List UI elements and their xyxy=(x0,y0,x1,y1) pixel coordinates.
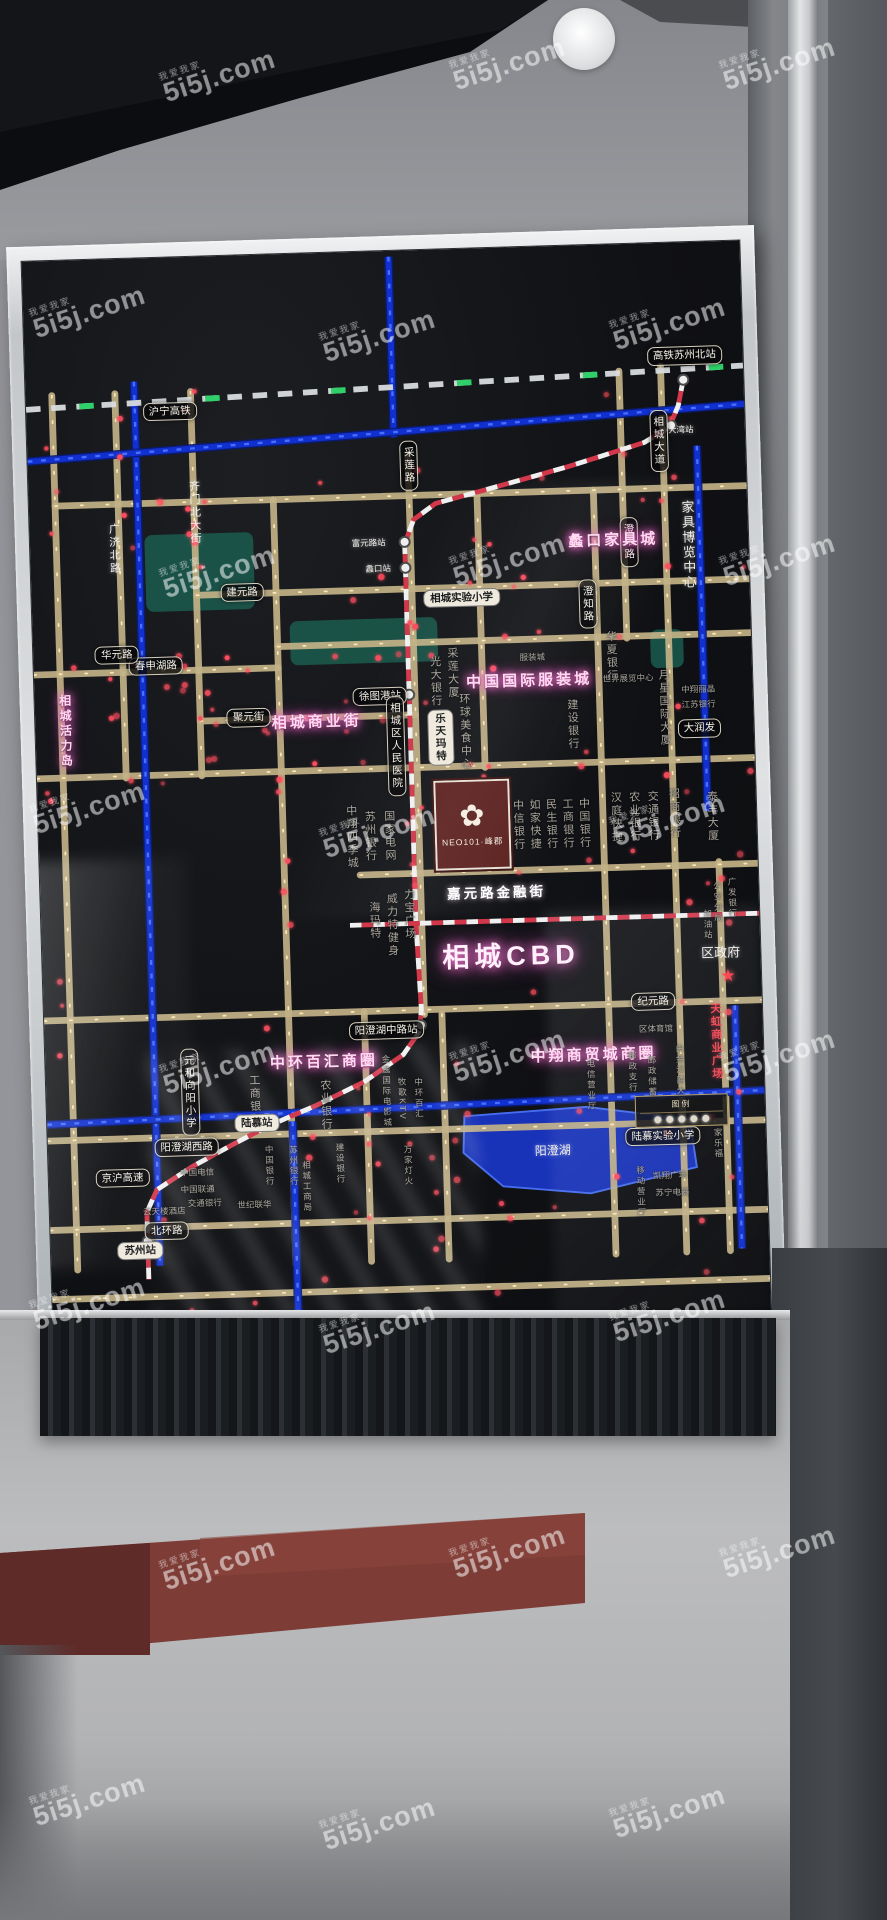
red-led-dot xyxy=(641,498,645,502)
map-label: 环球美食中心 xyxy=(457,692,472,770)
developer-brand-text: NEO101·峰郡 xyxy=(442,835,504,849)
red-led-dot xyxy=(499,1201,504,1206)
map-label: 大润发 xyxy=(677,719,721,738)
red-led-dot xyxy=(675,703,681,709)
map-label: 苏宁电器 xyxy=(655,1187,689,1198)
red-led-dot xyxy=(378,574,385,581)
legend-dot-icon xyxy=(702,1115,709,1122)
red-led-dot xyxy=(434,1190,439,1195)
red-led-dot xyxy=(322,1276,329,1282)
map-label: 世纪联华 xyxy=(237,1200,271,1211)
red-led-dot xyxy=(686,899,692,905)
map-board-frame: 沪宁高铁高铁苏州北站大湾站澄阳路采莲路相城大道澄知路广济北路齐门北大街富元路站蠡… xyxy=(6,225,786,1349)
red-led-dot xyxy=(108,677,112,681)
red-led-dot xyxy=(604,392,609,397)
legend-title: 图例 xyxy=(640,1097,724,1113)
red-led-dot xyxy=(487,542,492,547)
location-map: 沪宁高铁高铁苏州北站大湾站澄阳路采莲路相城大道澄知路广济北路齐门北大街富元路站蠡… xyxy=(21,239,773,1334)
red-led-dot xyxy=(161,781,165,785)
map-label: 建元路 xyxy=(220,582,264,601)
photo-scene: 沪宁高铁高铁苏州北站大湾站澄阳路采莲路相城大道澄知路广济北路齐门北大街富元路站蠡… xyxy=(0,0,887,1920)
entry-mat-grate xyxy=(40,1318,776,1436)
map-label: 北环路 xyxy=(145,1221,189,1240)
red-led-dot xyxy=(584,750,589,755)
floor-red-stripe xyxy=(0,1505,585,1655)
red-led-dot xyxy=(671,474,677,480)
ceiling-dark-panel-inner xyxy=(0,0,548,132)
map-label: 电信营业厅 xyxy=(585,1059,596,1112)
map-label: 大湾站 xyxy=(668,426,694,437)
map-label: 广济北路 xyxy=(107,523,121,575)
map-label: 中国银行 xyxy=(263,1145,274,1187)
map-label: 齐门北大街 xyxy=(187,480,202,545)
map-label: 纪元路 xyxy=(631,991,675,1010)
map-label: 移动营业厅 xyxy=(635,1165,646,1218)
red-led-dot xyxy=(206,757,212,763)
red-led-dot xyxy=(423,700,428,705)
map-label: 建设银行 xyxy=(565,698,579,750)
map-label: 相城区人民医院 xyxy=(386,696,407,796)
floor-bottom-shadow xyxy=(0,1800,790,1920)
red-led-dot xyxy=(429,1155,435,1161)
red-led-dot xyxy=(664,772,671,779)
map-label: 区政府 xyxy=(701,946,740,962)
red-led-dot xyxy=(531,989,537,995)
legend-dot-icon xyxy=(690,1115,697,1122)
red-led-dot xyxy=(211,756,217,762)
map-label: 相城商业街 xyxy=(272,712,362,732)
red-led-dot xyxy=(726,919,733,925)
map-label: 家具博览中心 xyxy=(678,500,696,590)
red-led-dot xyxy=(45,791,50,796)
round-wall-light xyxy=(553,8,615,70)
map-label: 聚元街 xyxy=(227,708,271,727)
red-led-dot xyxy=(210,708,214,712)
red-led-dot xyxy=(354,1210,359,1215)
map-label: 澄知路 xyxy=(578,579,598,629)
map-label: 海玛特 xyxy=(367,901,381,940)
map-label: 陆慕站 xyxy=(234,1114,280,1133)
map-label: 苏州站 xyxy=(117,1241,163,1260)
map-label: 陆慕实验小学 xyxy=(625,1126,701,1146)
map-label: 招商银行 xyxy=(667,788,681,840)
metal-pillar xyxy=(788,0,818,1300)
legend-icons xyxy=(640,1114,723,1123)
red-led-dot xyxy=(737,851,744,858)
map-label: 相城大道 xyxy=(649,410,669,473)
map-label: 交通银行 xyxy=(188,1198,222,1209)
map-label: 如家快捷 xyxy=(527,798,541,850)
map-label: 中环百汇商圈 xyxy=(270,1052,378,1072)
map-label: 嘉元路金融街 xyxy=(447,884,546,902)
red-led-dot xyxy=(318,481,322,485)
red-led-dot xyxy=(164,684,170,690)
red-led-dot xyxy=(205,690,211,696)
red-led-dot xyxy=(60,1004,64,1008)
red-led-dot xyxy=(44,446,49,451)
road xyxy=(477,494,485,768)
map-label: 国家电网 xyxy=(382,810,396,862)
map-label: 采莲大厦 xyxy=(445,647,459,699)
red-led-dot xyxy=(182,682,188,688)
map-label: 相城工商局 xyxy=(301,1160,312,1213)
metro-station xyxy=(678,375,688,385)
red-led-dot xyxy=(350,597,356,603)
red-led-dot xyxy=(344,699,348,703)
map-label: 交通银行 xyxy=(645,790,659,842)
red-led-dot xyxy=(684,789,689,794)
red-led-dot xyxy=(586,857,592,863)
map-label: 采莲路 xyxy=(399,441,419,491)
right-wall-dark xyxy=(828,0,887,1280)
map-label: 苏州银行 xyxy=(363,810,377,862)
road xyxy=(442,1014,449,1259)
developer-logo: ✿NEO101·峰郡 xyxy=(433,778,511,871)
map-legend: 图例 xyxy=(635,1093,729,1128)
map-label: 万家灯火 xyxy=(402,1145,413,1187)
red-led-dot xyxy=(113,713,120,720)
map-label: 邮政储蓄 xyxy=(646,1055,657,1097)
map-label: 家乐福 xyxy=(712,1127,723,1159)
map-label: 区体育馆 xyxy=(639,1024,673,1035)
red-led-dot xyxy=(225,655,230,660)
map-label: 服装城 xyxy=(519,653,545,664)
map-label: 邮政支行 xyxy=(626,1051,637,1093)
map-label: 中国联通 xyxy=(180,1184,214,1195)
red-led-dot xyxy=(537,630,542,635)
map-label: 相城活力岛 xyxy=(57,694,73,769)
map-label: 沪宁高铁 xyxy=(142,401,197,421)
red-led-dot xyxy=(521,575,527,581)
map-label: 中翔四季城 xyxy=(344,804,359,869)
red-led-dot xyxy=(704,1269,710,1275)
red-led-dot xyxy=(122,513,128,518)
red-led-dot xyxy=(57,979,63,985)
red-led-dot xyxy=(438,1236,445,1242)
red-led-dot xyxy=(454,1061,459,1066)
map-label: 阳澄湖 xyxy=(535,1144,571,1159)
red-led-dot xyxy=(433,1246,439,1252)
red-led-dot xyxy=(312,761,317,766)
map-label: 力宝广场 xyxy=(402,889,416,941)
legend-dot-icon xyxy=(666,1116,673,1123)
map-label: 中翔丽晶 xyxy=(681,685,715,696)
legend-dot-icon xyxy=(678,1115,685,1122)
map-label: 农业银行 xyxy=(627,791,641,843)
river xyxy=(134,382,160,1266)
map-label: 富元路站 xyxy=(352,539,386,550)
map-label: 相城CBD xyxy=(442,939,580,974)
map-label: 天虹商业广场 xyxy=(708,1002,723,1080)
red-led-dot xyxy=(48,798,54,804)
map-label: 光大银行 xyxy=(428,655,442,707)
red-led-dot xyxy=(699,1218,705,1224)
red-led-dot xyxy=(490,665,497,671)
red-led-dot xyxy=(630,849,635,854)
metro-station xyxy=(400,563,410,573)
red-led-dot xyxy=(495,1289,501,1295)
map-label: 加油站 xyxy=(702,908,713,940)
map-label: 工商银行 xyxy=(560,798,574,850)
map-label: 元和向阳小学 xyxy=(180,1049,201,1136)
red-led-dot xyxy=(747,768,753,774)
map-label: 月星国际大厦 xyxy=(656,669,671,747)
map-label: 中国电信 xyxy=(180,1168,214,1179)
map-label: 威力特健身 xyxy=(384,892,399,957)
red-led-dot xyxy=(57,1053,62,1058)
map-label: 中环百汇 xyxy=(413,1077,424,1119)
map-label: 华元路 xyxy=(95,646,139,665)
map-label: 牧歌KTV xyxy=(396,1077,407,1121)
red-led-dot xyxy=(264,1025,270,1031)
red-led-dot xyxy=(405,821,410,826)
red-led-dot xyxy=(71,665,77,671)
red-led-dot xyxy=(253,1301,258,1306)
red-led-dot xyxy=(360,760,365,765)
map-label: 汉庭快捷 xyxy=(609,791,623,843)
red-led-dot xyxy=(552,1205,556,1209)
map-label: 中信银行 xyxy=(511,799,525,851)
map-label: 阳澄湖中路站 xyxy=(348,1020,424,1040)
map-label: 金逸国际电影城 xyxy=(380,1055,392,1129)
map-label: 京沪高速 xyxy=(95,1169,150,1189)
map-label: 苏州银行 xyxy=(288,1145,299,1187)
map-label: 凯翔广场 xyxy=(653,1170,687,1181)
map-label: 民生银行 xyxy=(544,798,558,850)
map-label: 中国银行 xyxy=(577,797,591,849)
map-label: 农业银行 xyxy=(318,1079,332,1131)
map-label: 云天楼酒店 xyxy=(143,1206,186,1217)
red-led-dot xyxy=(706,881,710,885)
legend-dot-icon xyxy=(654,1116,661,1123)
map-label: 阳澄湖西路 xyxy=(154,1138,219,1158)
map-label: 高铁苏州北站 xyxy=(647,345,723,365)
metro-station xyxy=(399,537,409,547)
map-label: 蠡口家具城 xyxy=(568,531,658,551)
government-star-icon: ★ xyxy=(720,965,736,985)
map-label: 广发银行 xyxy=(726,877,737,919)
red-led-dot xyxy=(741,565,746,570)
flower-logo-icon: ✿ xyxy=(459,801,485,832)
map-label: 世界展览中心 xyxy=(602,673,653,684)
map-label: 公安分局 xyxy=(712,881,723,923)
map-label: 建设银行 xyxy=(334,1143,345,1185)
map-label: 蠡口站 xyxy=(365,564,391,575)
red-led-dot xyxy=(454,1177,461,1184)
map-label: 江苏银行 xyxy=(682,700,716,711)
red-led-dot xyxy=(180,688,186,694)
map-label: 乐天玛特 xyxy=(427,710,455,767)
map-label: 泰丰大厦 xyxy=(705,790,719,842)
map-label: 相城实验小学 xyxy=(423,588,501,608)
red-led-dot xyxy=(452,1138,458,1144)
red-led-dot xyxy=(375,1161,381,1166)
